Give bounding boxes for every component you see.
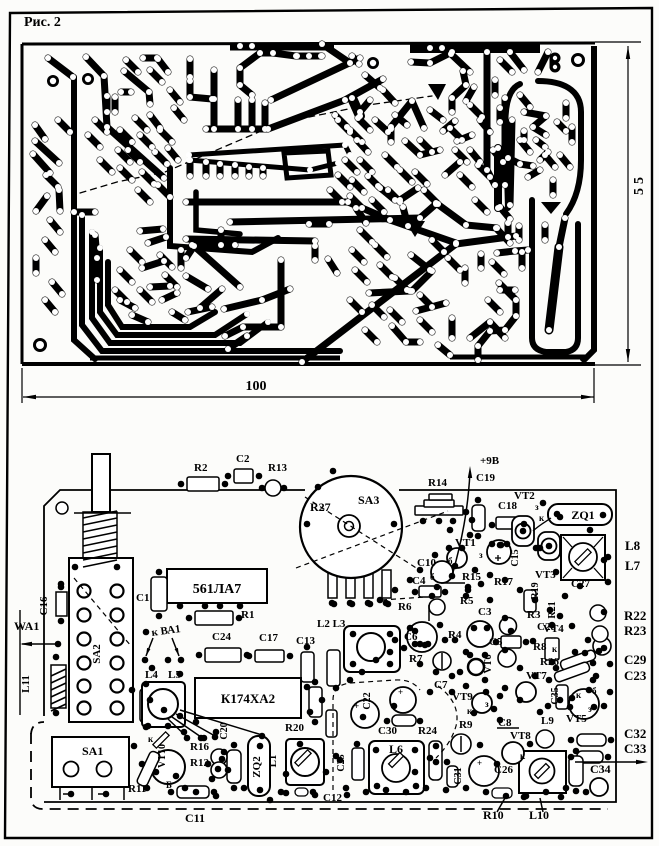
svg-text:C12: C12	[323, 792, 342, 804]
svg-text:C30: C30	[378, 725, 397, 737]
svg-text:VT10: VT10	[157, 744, 168, 768]
svg-text:R16: R16	[190, 741, 209, 753]
svg-text:VT1: VT1	[455, 537, 476, 549]
svg-text:R10: R10	[483, 808, 504, 822]
svg-text:561ЛА7: 561ЛА7	[193, 582, 242, 597]
svg-text:ZQ2: ZQ2	[251, 756, 263, 778]
svg-text:к: к	[467, 706, 473, 716]
svg-text:C17: C17	[259, 632, 278, 644]
svg-text:VT3: VT3	[535, 569, 556, 581]
svg-text:55: 55	[632, 173, 647, 195]
svg-text:R4: R4	[448, 629, 462, 641]
svg-text:C7: C7	[434, 679, 448, 691]
svg-text:C31: C31	[453, 767, 464, 784]
svg-text:R1: R1	[241, 609, 254, 621]
svg-text:R26: R26	[540, 656, 559, 668]
svg-text:VT9: VT9	[452, 691, 473, 703]
svg-text:C35: C35	[550, 687, 561, 704]
svg-text:C16: C16	[38, 596, 50, 615]
svg-text:C10: C10	[417, 557, 436, 569]
svg-text:з: з	[479, 550, 483, 560]
svg-text:б: б	[448, 556, 453, 566]
svg-text:SA3: SA3	[358, 493, 379, 507]
svg-text:R19: R19	[530, 582, 541, 599]
svg-text:C26: C26	[494, 764, 513, 776]
svg-text:к: к	[539, 513, 545, 523]
svg-text:L5: L5	[168, 669, 181, 681]
svg-text:L11: L11	[20, 675, 32, 693]
svg-text:R8: R8	[533, 641, 547, 653]
svg-text:з: з	[535, 502, 539, 512]
svg-text:C33: C33	[624, 741, 647, 756]
svg-text:C13: C13	[296, 635, 315, 647]
svg-text:WA1: WA1	[14, 619, 39, 633]
svg-text:к: к	[148, 734, 154, 744]
svg-text:R7: R7	[409, 653, 423, 665]
svg-text:+: +	[354, 701, 359, 711]
svg-text:C23: C23	[624, 668, 647, 683]
svg-text:C29: C29	[624, 652, 647, 667]
svg-text:L6: L6	[389, 742, 403, 756]
svg-text:R20: R20	[285, 722, 304, 734]
svg-text:R5: R5	[460, 595, 474, 607]
svg-text:R14: R14	[428, 477, 447, 489]
svg-text:C27: C27	[571, 578, 590, 590]
svg-text:з: з	[485, 699, 489, 709]
svg-text:Б: Б	[166, 780, 172, 790]
svg-text:R23: R23	[624, 623, 647, 638]
svg-text:VT5: VT5	[566, 713, 587, 725]
svg-text:R12: R12	[190, 757, 209, 769]
svg-text:C4: C4	[412, 575, 426, 587]
svg-text:SA2: SA2	[91, 644, 103, 664]
svg-text:К174ХА2: К174ХА2	[221, 691, 275, 706]
svg-text:к: к	[576, 690, 582, 700]
svg-text:R15: R15	[462, 571, 481, 583]
svg-text:C18: C18	[498, 500, 517, 512]
svg-text:L7: L7	[625, 558, 641, 573]
svg-text:R21: R21	[547, 601, 558, 618]
svg-text:R24: R24	[418, 725, 437, 737]
svg-text:+: +	[398, 687, 403, 697]
svg-text:R17: R17	[494, 576, 513, 588]
svg-text:Рис. 2: Рис. 2	[24, 15, 61, 30]
svg-text:VT4: VT4	[543, 623, 564, 635]
svg-text:R27: R27	[310, 500, 331, 514]
svg-text:C20: C20	[219, 722, 230, 739]
svg-text:VT8: VT8	[510, 730, 531, 742]
svg-text:L1: L1	[267, 755, 279, 768]
svg-text:C22: C22	[362, 692, 373, 709]
svg-text:VT2: VT2	[514, 490, 535, 502]
svg-text:C15: C15	[510, 549, 521, 566]
svg-text:L8: L8	[625, 538, 641, 553]
svg-text:б: б	[430, 572, 435, 582]
svg-text:C1: C1	[136, 592, 149, 604]
svg-text:C6: C6	[404, 631, 418, 643]
svg-text:VT6: VT6	[483, 655, 494, 674]
svg-text:C34: C34	[590, 762, 611, 776]
svg-text:R3: R3	[527, 609, 541, 621]
svg-text:L9: L9	[541, 715, 554, 727]
svg-text:C25: C25	[336, 754, 347, 771]
svg-text:+: +	[477, 758, 482, 768]
svg-text:б: б	[592, 686, 597, 696]
svg-text:R6: R6	[398, 601, 412, 613]
svg-text:C8: C8	[498, 717, 512, 729]
svg-text:C2: C2	[236, 453, 250, 465]
svg-text:L4: L4	[145, 669, 158, 681]
svg-text:L10: L10	[529, 808, 549, 822]
svg-text:C19: C19	[476, 472, 495, 484]
svg-text:ZQ1: ZQ1	[571, 508, 594, 522]
svg-text:R22: R22	[624, 608, 646, 623]
svg-text:C3: C3	[478, 606, 492, 618]
svg-text:к: к	[552, 644, 558, 654]
svg-text:R2: R2	[194, 462, 208, 474]
svg-text:L2 L3: L2 L3	[317, 618, 346, 630]
svg-text:к: к	[520, 751, 526, 761]
svg-text:C11: C11	[185, 811, 205, 825]
svg-text:+9В: +9В	[480, 455, 500, 467]
svg-text:C24: C24	[212, 631, 231, 643]
svg-text:э: э	[588, 704, 592, 714]
svg-text:VT7: VT7	[526, 670, 547, 682]
svg-text:R13: R13	[268, 462, 287, 474]
svg-text:100: 100	[246, 379, 267, 394]
svg-text:R9: R9	[459, 719, 473, 731]
svg-text:C5: C5	[489, 636, 503, 648]
svg-text:R11: R11	[128, 783, 146, 795]
svg-text:C32: C32	[624, 726, 646, 741]
svg-text:SA1: SA1	[82, 744, 103, 758]
